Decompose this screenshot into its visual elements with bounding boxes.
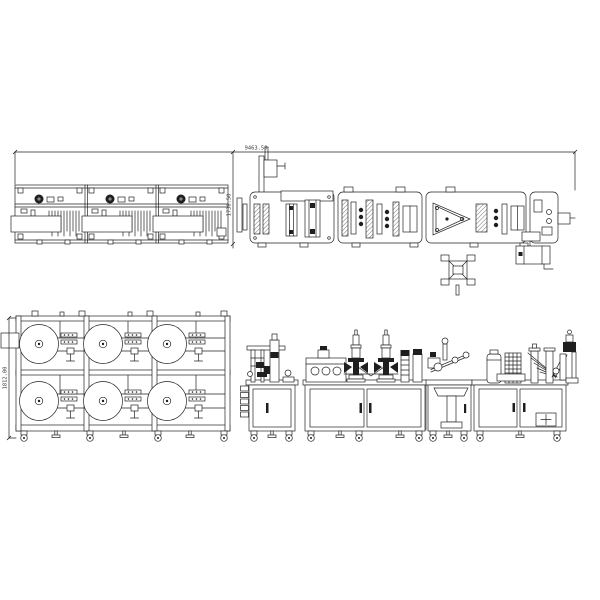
leveling-foot bbox=[336, 431, 344, 438]
mount-detail bbox=[441, 255, 475, 295]
leveling-foot bbox=[516, 431, 524, 438]
transfer-arm bbox=[428, 338, 469, 372]
material-roll bbox=[20, 325, 78, 364]
caster-wheel bbox=[221, 431, 228, 441]
leveling-foot bbox=[52, 431, 60, 438]
plan-view-machine bbox=[237, 147, 575, 295]
caster-wheel bbox=[416, 431, 423, 441]
stand-height-dim: 1812.00 bbox=[3, 367, 9, 390]
leveling-foot bbox=[268, 431, 276, 438]
overall-length-dim: 9463.50 bbox=[245, 146, 268, 152]
caster-wheel bbox=[430, 431, 437, 441]
front-view-roll-stand bbox=[1, 311, 230, 441]
front-view-machine bbox=[241, 330, 579, 441]
leveling-foot bbox=[186, 431, 194, 438]
caster-wheel bbox=[87, 431, 94, 441]
leveling-foot bbox=[444, 431, 452, 438]
caster-wheel bbox=[251, 431, 258, 441]
leveling-foot bbox=[120, 431, 128, 438]
outfeed-arm bbox=[552, 330, 578, 383]
machine-depth-dim: 1738.50 bbox=[227, 194, 233, 217]
leveling-foot bbox=[396, 431, 404, 438]
caster-wheel bbox=[155, 431, 162, 441]
caster-wheel bbox=[21, 431, 28, 441]
plan-view-roll-stand bbox=[11, 185, 228, 244]
caster-wheel bbox=[356, 431, 363, 441]
material-roll bbox=[84, 325, 142, 364]
cabinet-4 bbox=[474, 385, 566, 431]
control-panel bbox=[536, 413, 556, 426]
drawing-canvas: 9463.50 1738.50 1812.00 bbox=[0, 0, 600, 600]
caster-wheel bbox=[477, 431, 484, 441]
cabinet-2 bbox=[305, 385, 425, 431]
caster-wheel bbox=[286, 431, 293, 441]
material-roll bbox=[84, 382, 142, 421]
caster-wheel bbox=[308, 431, 315, 441]
roller-station bbox=[306, 346, 346, 382]
caster-wheel bbox=[554, 431, 561, 441]
material-roll bbox=[148, 325, 206, 364]
press-column bbox=[413, 349, 422, 382]
caster-wheel bbox=[461, 431, 468, 441]
cabinet-1 bbox=[249, 385, 295, 431]
unwind-station bbox=[247, 334, 294, 382]
material-roll bbox=[20, 382, 78, 421]
rewind-column bbox=[401, 350, 410, 382]
guide-column-2 bbox=[544, 348, 555, 383]
plan-tower bbox=[259, 147, 285, 193]
cad-machine-assembly-drawing: 9463.50 1738.50 1812.00 bbox=[0, 0, 600, 600]
cabinet-3 bbox=[428, 385, 471, 431]
material-roll bbox=[148, 382, 206, 421]
